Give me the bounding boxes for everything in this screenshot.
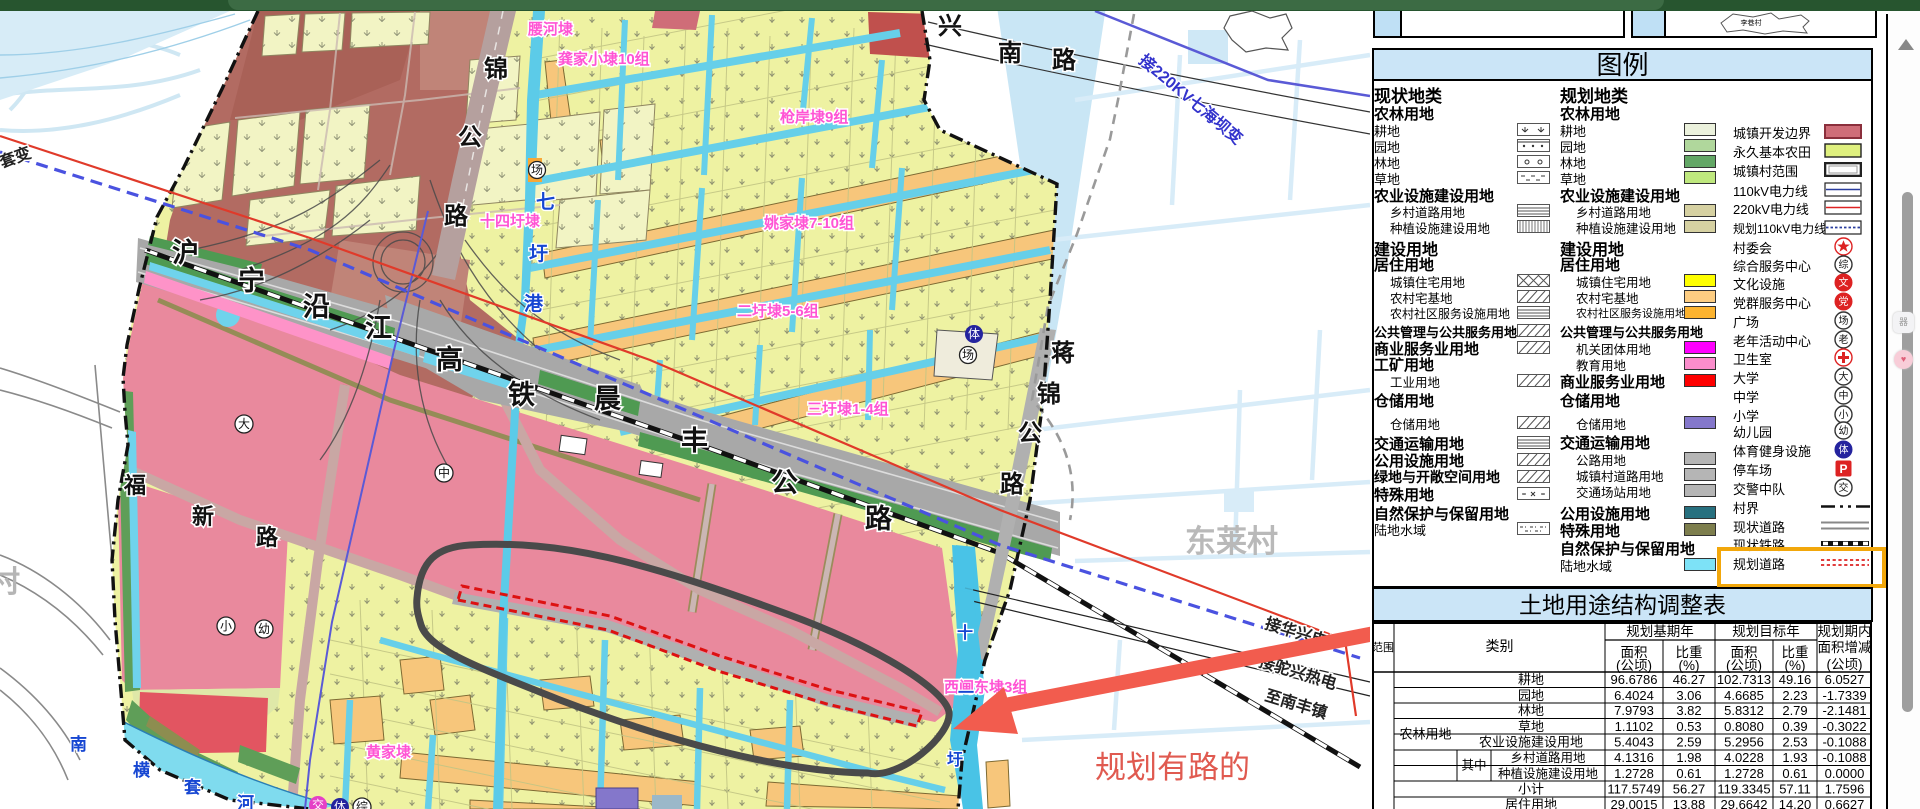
- svg-text:福: 福: [123, 473, 146, 498]
- svg-text:-1.7339: -1.7339: [1822, 688, 1866, 703]
- svg-text:P: P: [1839, 462, 1847, 476]
- svg-text:4.1316: 4.1316: [1614, 750, 1654, 765]
- svg-text:2.23: 2.23: [1782, 688, 1807, 703]
- svg-text:公: 公: [771, 468, 798, 498]
- svg-text:场: 场: [1839, 314, 1849, 327]
- svg-text:枪岸埭9组: 枪岸埭9组: [780, 108, 848, 126]
- svg-text:0.0000: 0.0000: [1825, 766, 1865, 781]
- svg-text:丰: 丰: [681, 426, 708, 456]
- svg-text:1.2728: 1.2728: [1614, 766, 1654, 781]
- svg-text:文: 文: [1839, 276, 1849, 289]
- svg-text:套: 套: [183, 777, 202, 797]
- svg-text:0.6627: 0.6627: [1825, 797, 1865, 809]
- svg-text:姚家埭7-10组: 姚家埭7-10组: [763, 214, 854, 232]
- svg-text:46.27: 46.27: [1673, 672, 1706, 687]
- svg-text:小: 小: [1839, 409, 1849, 421]
- svg-text:高: 高: [436, 344, 463, 375]
- svg-text:119.3345: 119.3345: [1717, 782, 1770, 797]
- svg-text:49.16: 49.16: [1779, 672, 1812, 687]
- svg-text:57.11: 57.11: [1779, 782, 1811, 797]
- svg-text:党: 党: [1839, 295, 1849, 308]
- svg-text:体: 体: [1839, 444, 1849, 456]
- svg-text:西闸东埭3组: 西闸东埭3组: [944, 678, 1027, 696]
- svg-text:七: 七: [536, 191, 555, 213]
- svg-text:龚家小埭10组: 龚家小埭10组: [558, 50, 650, 68]
- svg-text:范围: 范围: [1372, 640, 1394, 654]
- svg-text:(%): (%): [1785, 658, 1806, 673]
- svg-text:李巷村: 李巷村: [1741, 18, 1762, 27]
- svg-text:96.6786: 96.6786: [1611, 672, 1658, 687]
- svg-text:6.0527: 6.0527: [1825, 672, 1865, 687]
- svg-text:场: 场: [531, 163, 543, 177]
- svg-text:路: 路: [256, 525, 279, 550]
- svg-text:0.39: 0.39: [1782, 719, 1807, 734]
- svg-text:路: 路: [444, 202, 469, 230]
- svg-text:路: 路: [1000, 470, 1025, 498]
- svg-text:锦: 锦: [484, 56, 508, 83]
- svg-text:路: 路: [1052, 46, 1077, 74]
- svg-text:规划期内: 规划期内: [1818, 624, 1872, 639]
- svg-text:规划目标年: 规划目标年: [1732, 624, 1800, 639]
- svg-text:大: 大: [238, 417, 250, 431]
- svg-text:中: 中: [1839, 389, 1849, 402]
- svg-text:综: 综: [356, 800, 368, 809]
- svg-text:河: 河: [237, 794, 254, 809]
- svg-text:1.2728: 1.2728: [1724, 766, 1764, 781]
- svg-text:综: 综: [1839, 258, 1849, 271]
- svg-text:3.06: 3.06: [1676, 688, 1701, 703]
- svg-text:兴: 兴: [938, 13, 962, 40]
- svg-text:交: 交: [1839, 481, 1849, 494]
- svg-text:6.4024: 6.4024: [1614, 688, 1654, 703]
- svg-text:1.93: 1.93: [1782, 750, 1807, 765]
- svg-text:圩: 圩: [529, 243, 548, 265]
- svg-text:种植设施建设用地: 种植设施建设用地: [1498, 766, 1599, 781]
- svg-text:横: 横: [133, 760, 150, 780]
- svg-text:耕地: 耕地: [1518, 672, 1544, 687]
- svg-text:沪: 沪: [172, 238, 199, 268]
- svg-text:1.98: 1.98: [1676, 750, 1701, 765]
- svg-text:3.82: 3.82: [1676, 703, 1701, 718]
- svg-text:2.59: 2.59: [1676, 735, 1701, 750]
- svg-text:-2.1481: -2.1481: [1822, 703, 1866, 718]
- svg-text:29.0015: 29.0015: [1611, 797, 1658, 809]
- svg-text:规划基期年: 规划基期年: [1626, 623, 1694, 639]
- svg-text:港: 港: [524, 293, 544, 315]
- svg-text:-0.1088: -0.1088: [1822, 750, 1866, 765]
- svg-text:南: 南: [998, 40, 1022, 67]
- svg-text:大: 大: [1839, 370, 1849, 383]
- svg-text:5.4043: 5.4043: [1614, 735, 1654, 750]
- svg-text:(%): (%): [1679, 658, 1700, 673]
- svg-text:幼: 幼: [1839, 424, 1849, 437]
- svg-text:14.20: 14.20: [1779, 797, 1812, 809]
- svg-text:1.7596: 1.7596: [1825, 782, 1865, 797]
- svg-text:草地: 草地: [1518, 719, 1544, 734]
- svg-text:农林用地: 农林用地: [1399, 727, 1451, 742]
- svg-text:沿: 沿: [303, 292, 330, 322]
- svg-text:居住用地: 居住用地: [1505, 797, 1557, 809]
- svg-text:小计: 小计: [1518, 782, 1544, 797]
- svg-text:宁: 宁: [238, 265, 265, 296]
- svg-text:0.61: 0.61: [1782, 766, 1807, 781]
- svg-text:13.88: 13.88: [1673, 797, 1706, 809]
- svg-text:117.5749: 117.5749: [1607, 782, 1660, 797]
- svg-text:十: 十: [957, 623, 973, 642]
- svg-text:(公顷): (公顷): [1827, 657, 1863, 672]
- svg-text:中: 中: [438, 465, 450, 480]
- svg-text:-0.1088: -0.1088: [1822, 735, 1866, 750]
- svg-text:29.6642: 29.6642: [1721, 797, 1768, 809]
- svg-text:-0.3022: -0.3022: [1822, 719, 1866, 734]
- svg-text:乡村道路用地: 乡村道路用地: [1510, 750, 1586, 765]
- svg-text:十四圩埭: 十四圩埭: [480, 212, 540, 230]
- svg-text:场: 场: [962, 348, 974, 362]
- svg-text:7.9793: 7.9793: [1614, 703, 1654, 718]
- svg-text:4.6685: 4.6685: [1724, 688, 1764, 703]
- svg-text:江: 江: [365, 313, 392, 343]
- svg-text:圩: 圩: [947, 751, 963, 769]
- svg-text:农业设施建设用地: 农业设施建设用地: [1479, 735, 1583, 750]
- svg-text:5.2956: 5.2956: [1724, 735, 1764, 750]
- svg-text:2.79: 2.79: [1782, 703, 1807, 718]
- svg-text:4.0228: 4.0228: [1724, 750, 1764, 765]
- svg-text:102.7313: 102.7313: [1717, 672, 1771, 687]
- svg-text:二圩埭5-6组: 二圩埭5-6组: [737, 302, 819, 320]
- svg-text:(公顷): (公顷): [1726, 658, 1762, 673]
- svg-text:类别: 类别: [1486, 638, 1514, 654]
- svg-text:5.8312: 5.8312: [1724, 703, 1764, 718]
- svg-text:三圩埭1-4组: 三圩埭1-4组: [807, 400, 889, 418]
- svg-text:交: 交: [312, 797, 324, 809]
- svg-text:0.53: 0.53: [1676, 719, 1701, 734]
- svg-text:小: 小: [220, 619, 232, 633]
- svg-text:体: 体: [334, 800, 346, 809]
- svg-text:0.61: 0.61: [1676, 766, 1701, 781]
- svg-text:一: 一: [958, 685, 974, 702]
- svg-text:腰河埭: 腰河埭: [527, 20, 573, 38]
- svg-text:路: 路: [865, 503, 893, 534]
- svg-text:其中: 其中: [1461, 758, 1486, 773]
- svg-text:园地: 园地: [1518, 688, 1544, 703]
- svg-text:蒋: 蒋: [1051, 340, 1075, 367]
- svg-text:56.27: 56.27: [1673, 782, 1706, 797]
- svg-text:公: 公: [458, 124, 482, 151]
- svg-text:新: 新: [192, 504, 214, 529]
- svg-text:南: 南: [70, 734, 87, 754]
- svg-text:(公顷): (公顷): [1616, 658, 1652, 673]
- svg-text:村: 村: [0, 566, 20, 599]
- svg-text:面积增减: 面积增减: [1818, 640, 1872, 655]
- svg-text:2.53: 2.53: [1782, 735, 1807, 750]
- svg-text:东莱村: 东莱村: [1185, 524, 1278, 559]
- svg-text:锦: 锦: [1037, 381, 1061, 408]
- svg-text:晨: 晨: [594, 384, 622, 414]
- svg-text:1.1102: 1.1102: [1615, 719, 1654, 734]
- svg-text:黄家埭: 黄家埭: [366, 743, 411, 761]
- svg-text:公: 公: [1018, 420, 1042, 447]
- svg-text:幼: 幼: [258, 622, 270, 636]
- svg-text:规划有路的: 规划有路的: [1095, 750, 1250, 785]
- svg-text:体: 体: [968, 327, 980, 341]
- svg-text:老: 老: [1839, 333, 1849, 346]
- svg-text:林地: 林地: [1518, 703, 1544, 718]
- svg-text:铁: 铁: [508, 380, 535, 410]
- svg-text:0.8080: 0.8080: [1724, 719, 1764, 734]
